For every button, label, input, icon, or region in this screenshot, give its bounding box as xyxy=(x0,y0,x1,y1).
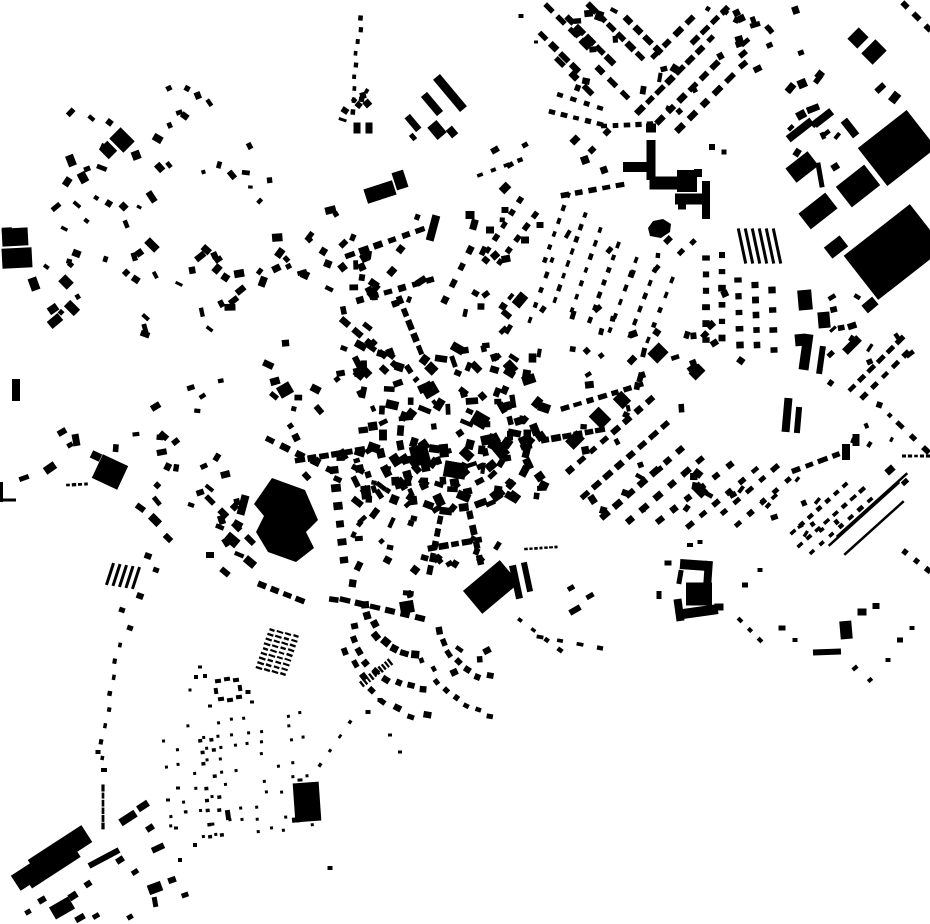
courtyard-complex xyxy=(680,559,709,571)
map-svg xyxy=(0,0,930,924)
industrial-blob-west xyxy=(254,478,318,562)
cross-complex xyxy=(647,140,656,180)
figure-ground-map xyxy=(0,0,930,924)
striped-terrace-1 xyxy=(255,666,262,670)
large-building-north xyxy=(363,180,396,204)
pond xyxy=(648,219,671,238)
bar-se xyxy=(813,649,841,656)
solid-block-south xyxy=(293,782,322,823)
long-line-3 xyxy=(843,500,904,555)
industrial-block-2 xyxy=(844,204,930,300)
